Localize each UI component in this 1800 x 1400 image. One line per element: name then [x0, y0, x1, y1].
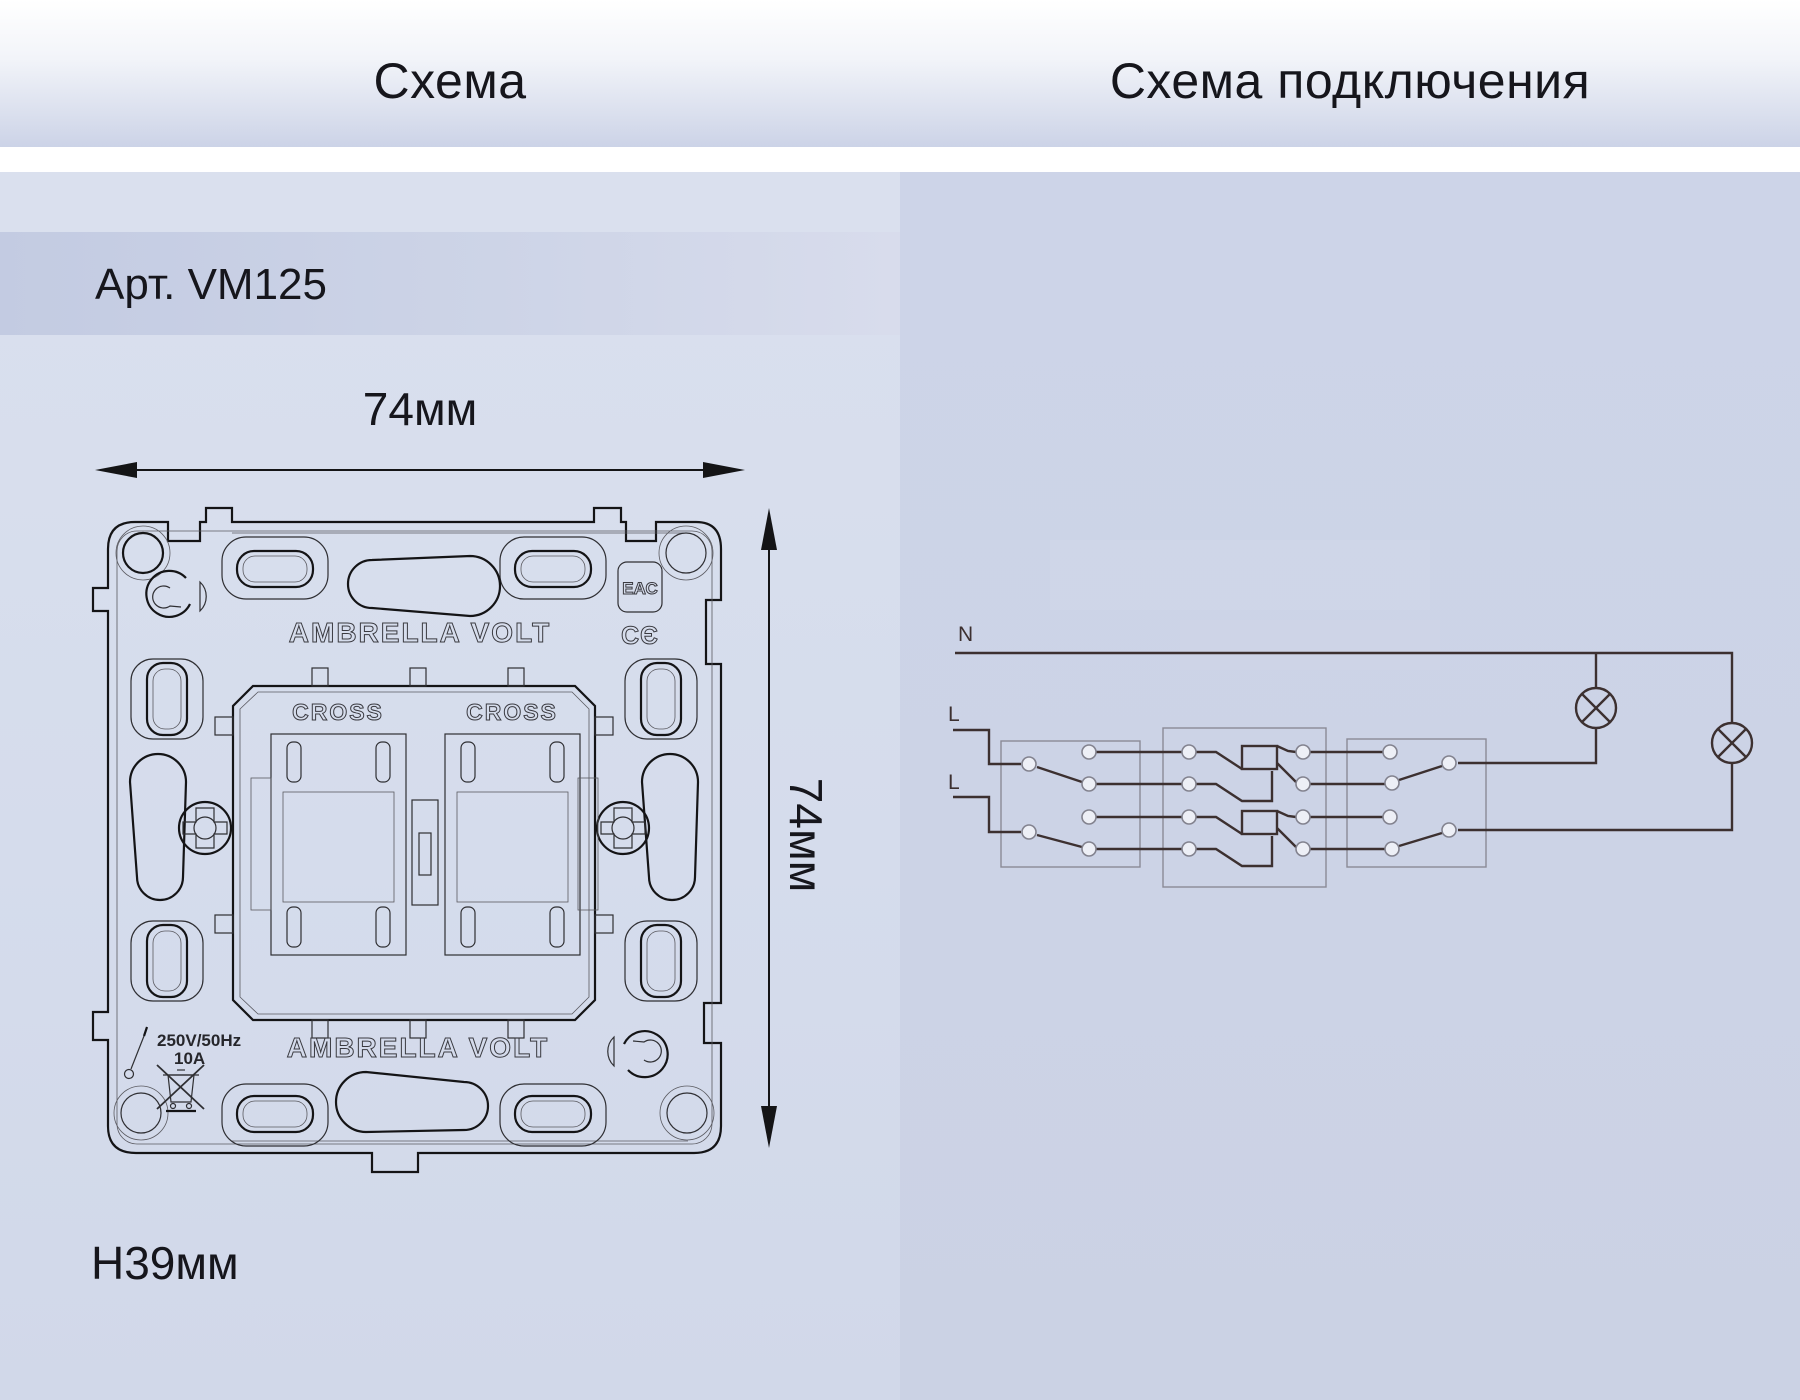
switch-module-1: [271, 734, 406, 955]
bone-slot-bottom: [336, 1072, 488, 1132]
brand-engraving-bottom: AMBRELLA VOLT: [287, 1032, 549, 1063]
switch2-blade-a: [1399, 766, 1442, 780]
claw-slot-right-lower: [625, 921, 697, 1001]
watermark-ghost: [1180, 620, 1440, 670]
lamp2-return-wire: [1458, 763, 1732, 830]
wiring-schematic: N L L: [900, 0, 1800, 1400]
line2-wire: [953, 797, 1021, 832]
claw-slot-top-right: [500, 537, 606, 599]
switch1-blade-a: [1037, 767, 1082, 782]
lamp-icon: [1576, 688, 1616, 728]
claw-slot-left-upper: [131, 659, 203, 739]
switch2-blade-b: [1399, 833, 1442, 846]
bone-slot-right: [642, 754, 698, 900]
voltage-rating: 250V/50Hz: [157, 1031, 241, 1050]
module1-engraving: CROSS: [292, 699, 384, 725]
cross-switch-channel1: [1196, 746, 1296, 801]
lamp-icon: [1712, 723, 1752, 763]
bone-slot-top: [348, 556, 500, 616]
brand-engraving-top: AMBRELLA VOLT: [289, 617, 551, 648]
neutral-label: N: [958, 623, 973, 646]
lamp1-return-wire: [1458, 728, 1596, 763]
line1-wire: [953, 730, 1021, 764]
dimension-width-arrow: [95, 462, 745, 478]
eac-mark: ЕАС: [618, 562, 662, 612]
current-rating: 10A: [174, 1049, 205, 1068]
weee-bin-icon: [157, 1065, 204, 1111]
claw-slot-left-lower: [131, 921, 203, 1001]
module2-engraving: CROSS: [466, 699, 558, 725]
claw-slot-top-left: [222, 537, 328, 599]
line2-label: L: [948, 771, 960, 794]
brand-logo-icon-bottom: [608, 1031, 668, 1077]
line1-label: L: [948, 703, 960, 726]
product-spec-page: { "headers": { "left": "Схема", "right":…: [0, 0, 1800, 1400]
fixing-screw-left: [179, 802, 231, 854]
claw-slot-bottom-right: [500, 1084, 606, 1146]
cross-switch-channel2: [1196, 811, 1296, 866]
claw-slot-right-upper: [625, 659, 697, 739]
bone-slot-left: [130, 754, 186, 900]
brand-logo-icon: [146, 571, 206, 617]
switch1-blade-b: [1037, 835, 1082, 847]
screwdriver-icon: [125, 1027, 148, 1079]
svg-text:ЕАС: ЕАС: [622, 579, 657, 598]
mechanism-drawing: AMBRELLA VOLT AMBRELLA VOLT CROSS CROSS …: [0, 0, 900, 1400]
watermark-ghost: [1050, 540, 1430, 610]
claw-slot-bottom-left: [222, 1084, 328, 1146]
ce-mark: СЄ: [621, 622, 659, 650]
module-coupling: [251, 778, 598, 910]
switch-module-2: [445, 734, 580, 955]
dimension-height-arrow: [761, 508, 777, 1148]
terminal-points: [1022, 745, 1456, 856]
fixing-screw-right: [597, 802, 649, 854]
